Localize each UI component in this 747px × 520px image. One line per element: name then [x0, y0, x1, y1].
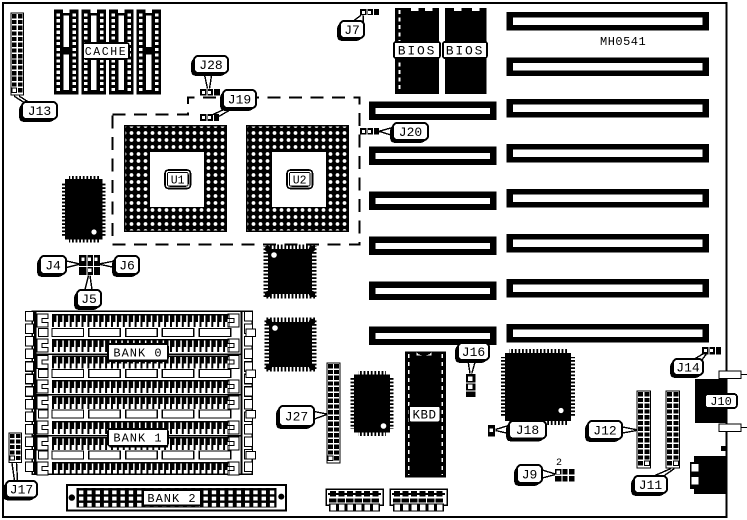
svg-text:CACHE: CACHE: [85, 46, 128, 59]
svg-text:J4: J4: [45, 258, 61, 273]
svg-text:J10: J10: [710, 395, 732, 409]
svg-text:J11: J11: [639, 478, 663, 493]
svg-text:BIOS: BIOS: [398, 43, 436, 58]
svg-text:MH0541: MH0541: [600, 35, 646, 49]
svg-text:J20: J20: [399, 125, 422, 140]
svg-text:J19: J19: [228, 92, 251, 107]
svg-text:J14: J14: [676, 360, 700, 375]
svg-text:BANK 2: BANK 2: [147, 492, 196, 506]
svg-text:J28: J28: [199, 58, 222, 73]
svg-text:J6: J6: [119, 258, 135, 273]
svg-text:U2: U2: [293, 175, 307, 188]
svg-text:2: 2: [556, 458, 562, 469]
svg-text:J27: J27: [285, 409, 308, 424]
svg-text:BANK 1: BANK 1: [113, 432, 162, 446]
svg-text:J16: J16: [462, 345, 485, 360]
svg-text:U1: U1: [171, 175, 185, 188]
svg-text:J18: J18: [516, 423, 539, 438]
svg-text:J17: J17: [10, 483, 33, 498]
svg-text:J9: J9: [522, 467, 538, 482]
svg-text:J13: J13: [28, 104, 51, 119]
svg-text:KBD: KBD: [412, 408, 436, 422]
svg-text:BIOS: BIOS: [446, 43, 484, 58]
svg-text:J12: J12: [593, 423, 616, 438]
svg-text:BANK 0: BANK 0: [113, 346, 162, 360]
svg-text:J5: J5: [81, 292, 97, 307]
svg-text:J7: J7: [344, 23, 360, 38]
